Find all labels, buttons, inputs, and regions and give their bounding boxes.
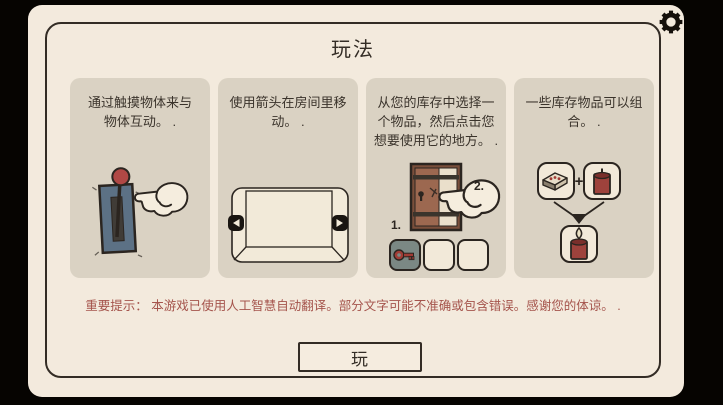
room-navigation-icon — [218, 183, 358, 268]
page-title: 玩法 — [47, 33, 659, 62]
panel-touch-objects: 通过触摸物体来与 物体互动。 . — [70, 78, 210, 278]
panel-move-arrows: 使用箭头在房间里移 动。 . — [218, 78, 358, 278]
panel-inventory-text: 从您的库存中选择一 个物品，然后点击您 想要使用它的地方。 . — [366, 93, 506, 150]
step-1-label: 1. — [391, 218, 401, 232]
lever-switch-icon — [70, 163, 210, 273]
settings-button[interactable] — [658, 9, 684, 35]
step-2-label: 2. — [474, 179, 484, 193]
game-tutorial-screen: { "title": "玩法", "settings": { "icon": "… — [0, 0, 723, 405]
panel-combine-text: 一些库存物品可以组 合。 . — [514, 93, 654, 131]
left-arrow-icon — [228, 215, 244, 231]
door-and-inventory-icon — [366, 148, 506, 276]
panel-combine-items: 一些库存物品可以组 合。 . — [514, 78, 654, 278]
plus-icon: + — [572, 173, 586, 190]
inventory-slots-icon — [390, 240, 488, 270]
pointing-hand-icon — [135, 183, 187, 216]
tutorial-panels: 通过触摸物体来与 物体互动。 . 使用箭头 — [70, 78, 654, 278]
how-to-play-modal: 玩法 通过触摸物体来与 物体互动。 . — [45, 22, 661, 378]
play-button[interactable]: 玩 — [298, 342, 422, 372]
lit-candle-slot — [561, 226, 597, 262]
gear-icon — [658, 9, 684, 35]
panel-inventory-use: 从您的库存中选择一 个物品，然后点击您 想要使用它的地方。 . — [366, 78, 506, 278]
panel-touch-text: 通过触摸物体来与 物体互动。 . — [70, 93, 210, 131]
matchbox-slot — [538, 163, 574, 199]
translation-warning-text: 重要提示： 本游戏已使用人工智慧自动翻译。部分文字可能不准确或包含错误。感谢您的… — [47, 295, 659, 314]
right-arrow-icon — [332, 215, 348, 231]
combine-arrow-icon — [554, 202, 604, 224]
panel-move-text: 使用箭头在房间里移 动。 . — [218, 93, 358, 131]
candle-slot — [584, 163, 620, 199]
